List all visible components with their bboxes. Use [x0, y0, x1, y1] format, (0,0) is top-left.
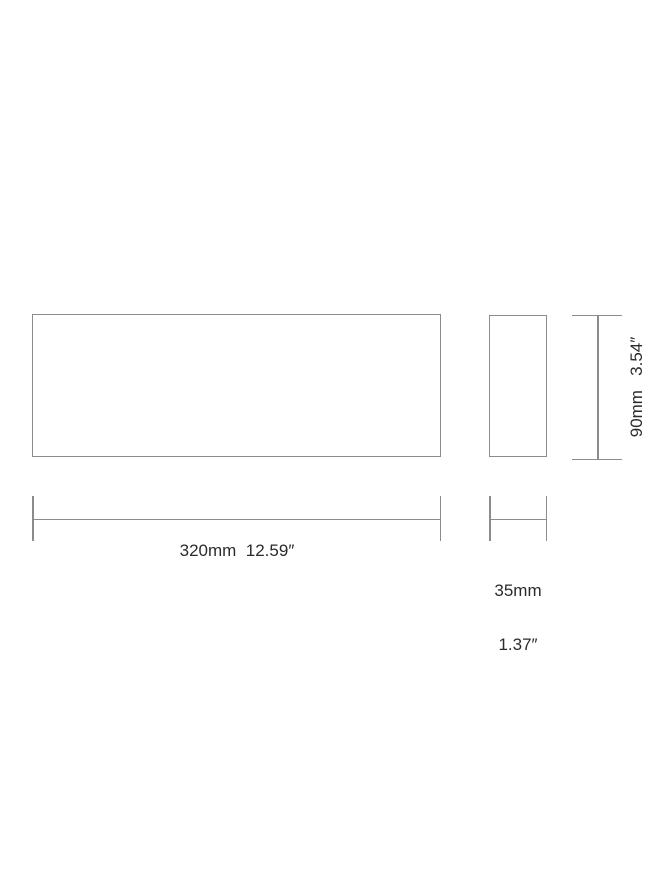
- width-dimension-line: [32, 519, 441, 521]
- depth-dimension-label-inches: 1.37″: [458, 636, 578, 654]
- width-dimension-right-tick: [440, 496, 442, 541]
- width-dimension-label: 320mm 12.59″: [137, 542, 337, 560]
- depth-dimension-line: [490, 519, 547, 521]
- front-view-outline: [32, 314, 441, 457]
- depth-dimension-right-tick: [546, 496, 548, 541]
- height-dimension-label: 90mm 3.54″: [628, 307, 646, 467]
- dimension-drawing: 320mm 12.59″ 35mm 1.37″ 90mm 3.54″: [0, 0, 670, 893]
- height-dimension-top-cap: [572, 315, 622, 317]
- depth-dimension-label: 35mm 1.37″: [458, 546, 578, 690]
- depth-dimension-label-mm: 35mm: [458, 582, 578, 600]
- width-dimension-left-tick: [32, 496, 34, 541]
- height-dimension-bottom-cap: [572, 459, 622, 461]
- side-view-outline: [489, 315, 547, 457]
- depth-dimension-left-tick: [489, 496, 491, 541]
- height-dimension-line: [597, 315, 599, 459]
